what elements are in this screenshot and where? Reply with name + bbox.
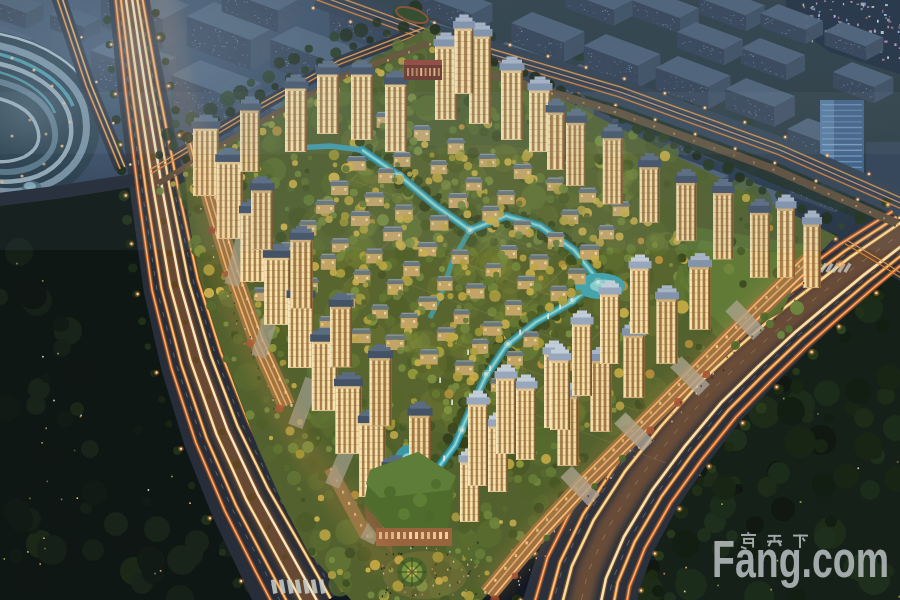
svg-text:Fang.com: Fang.com <box>712 530 889 588</box>
